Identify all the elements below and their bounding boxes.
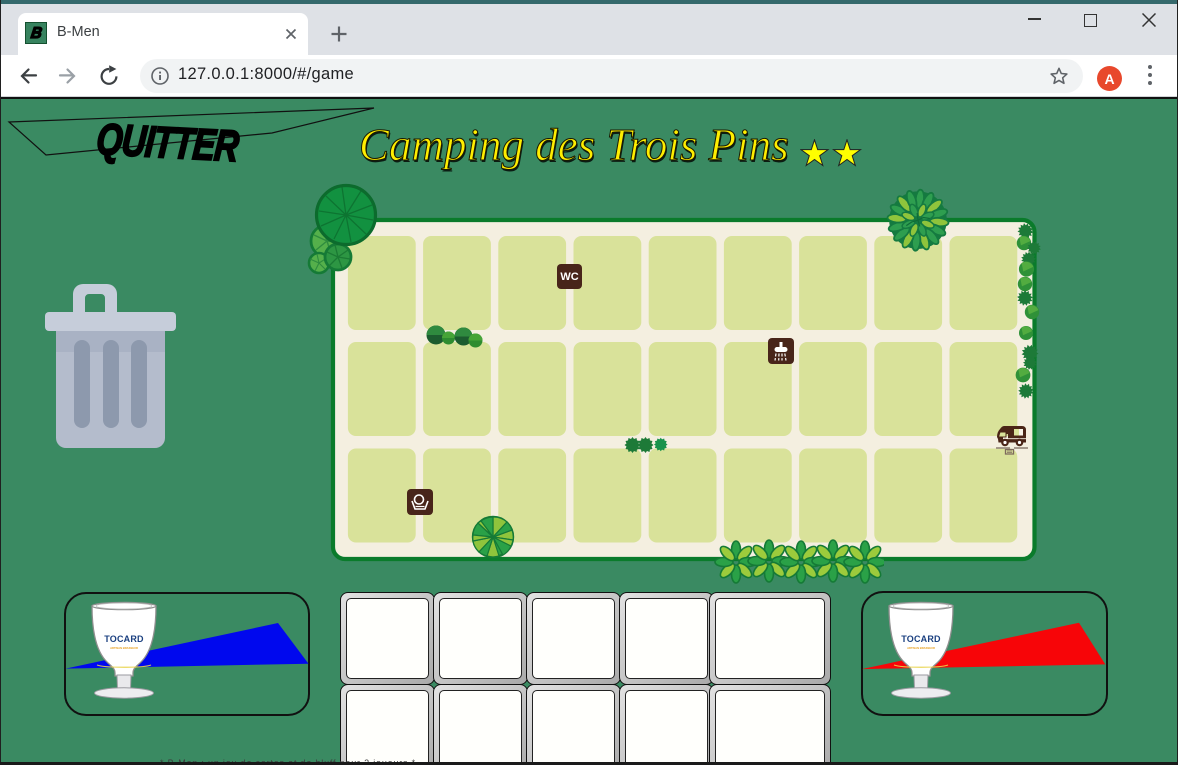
svg-text:TOCARD: TOCARD [901,634,941,644]
svg-text:ARTISAN BRASSEUR: ARTISAN BRASSEUR [907,646,935,650]
svg-text:ARTISAN BRASSEUR: ARTISAN BRASSEUR [110,646,138,650]
svg-text:TOCARD: TOCARD [104,634,144,644]
